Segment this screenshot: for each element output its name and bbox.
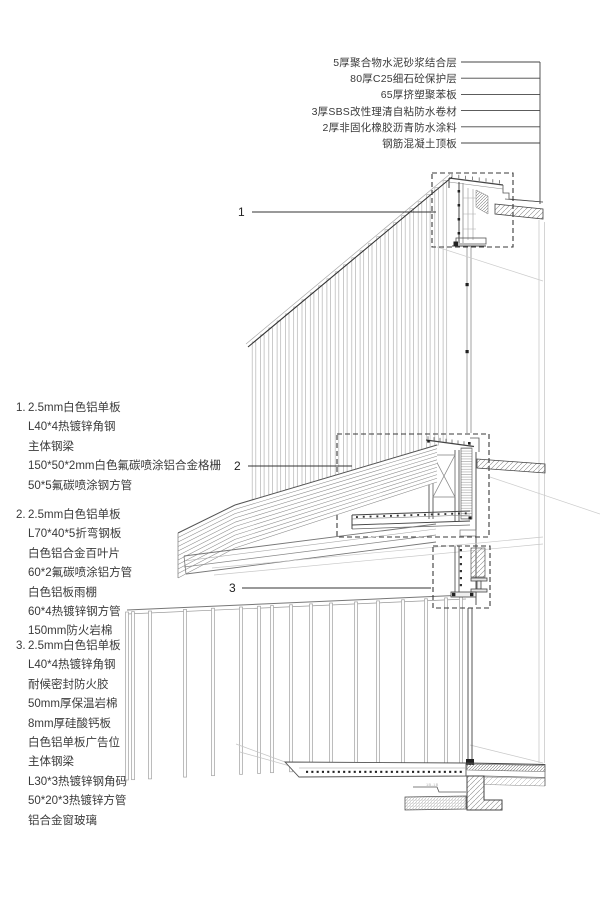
callout-marker-1: 1 <box>238 206 245 218</box>
roof-layer-callouts: 5厚聚合物水泥砂浆结合层 80厚C25细石砼保护层 65厚挤塑聚苯板 3厚SBS… <box>312 55 457 152</box>
note-line: 白色铝单板广告位 <box>16 734 127 753</box>
window-wall-band <box>126 595 475 780</box>
note-number: 3. <box>16 637 28 656</box>
note-line: L40*4热镀锌角钢 <box>16 656 127 675</box>
note-line: 150*50*2mm白色氟碳喷涂铝合金格栅 <box>16 457 221 476</box>
roof-layer-leaders <box>461 62 540 204</box>
ground-slab-right <box>467 763 545 810</box>
roof-parapet-detail <box>449 174 543 246</box>
roof-layer-label: 钢筋混凝土顶板 <box>312 136 457 152</box>
note-number: 2. <box>16 506 28 525</box>
note-line: 白色铝合金百叶片 <box>16 545 132 564</box>
roof-layer-label: 3厚SBS改性理清自粘防水卷材 <box>312 104 457 120</box>
roof-layer-label: 65厚挤塑聚苯板 <box>312 87 457 103</box>
note-line: 主体钢梁 <box>16 438 221 457</box>
note-number: 1. <box>16 399 28 418</box>
roof-layer-label: 5厚聚合物水泥砂浆结合层 <box>312 55 457 71</box>
note-block-1: 1. 2.5mm白色铝单板 L40*4热镀锌角钢 主体钢梁 150*50*2mm… <box>16 399 221 496</box>
callout-marker-3: 3 <box>229 582 236 594</box>
note-line: 2.5mm白色铝单板 <box>28 637 121 656</box>
step-ref-label: 1B-1B <box>426 783 439 787</box>
callout-marker-2: 2 <box>234 460 241 472</box>
drawing-stage: 5厚聚合物水泥砂浆结合层 80厚C25细石砼保护层 65厚挤塑聚苯板 3厚SBS… <box>0 0 600 900</box>
note-block-3: 3. 2.5mm白色铝单板 L40*4热镀锌角钢 耐候密封防火胶 50mm厚保温… <box>16 637 127 831</box>
roof-layer-label: 2厚非固化橡胶沥青防水涂料 <box>312 120 457 136</box>
note-line: L70*40*5折弯钢板 <box>16 525 132 544</box>
note-line: 8mm厚硅酸钙板 <box>16 715 127 734</box>
note-line: 50*20*3热镀锌方管 <box>16 792 127 811</box>
note-line: L40*4热镀锌角钢 <box>16 418 221 437</box>
note-line: 铝合金窗玻璃 <box>16 812 127 831</box>
note-line: 2.5mm白色铝单板 <box>28 506 121 525</box>
note-line: 2.5mm白色铝单板 <box>28 399 121 418</box>
note-block-2: 2. 2.5mm白色铝单板 L70*40*5折弯钢板 白色铝合金百叶片 60*2… <box>16 506 132 642</box>
note-line: 50mm厚保温岩棉 <box>16 695 127 714</box>
detail-drawing-page: { "roof_layers": [ "5厚聚合物水泥砂浆结合层", "80厚C… <box>0 0 600 900</box>
note-line: 60*2氟碳喷涂铝方管 <box>16 564 132 583</box>
note-line: 60*4热镀锌钢方管 <box>16 603 132 622</box>
note-line: 50*5氟碳喷涂钢方管 <box>16 477 221 496</box>
building-edge-lines <box>539 220 545 763</box>
note-line: 白色铝板雨棚 <box>16 584 132 603</box>
note-line: L30*3热镀锌钢角码 <box>16 773 127 792</box>
roof-layer-label: 80厚C25细石砼保护层 <box>312 71 457 87</box>
note-line: 耐候密封防火胶 <box>16 676 127 695</box>
facade-wall-lines <box>437 247 543 433</box>
threshold-step <box>405 787 466 810</box>
lower-fixing-detail <box>451 546 487 597</box>
note-line: 主体钢梁 <box>16 753 127 772</box>
